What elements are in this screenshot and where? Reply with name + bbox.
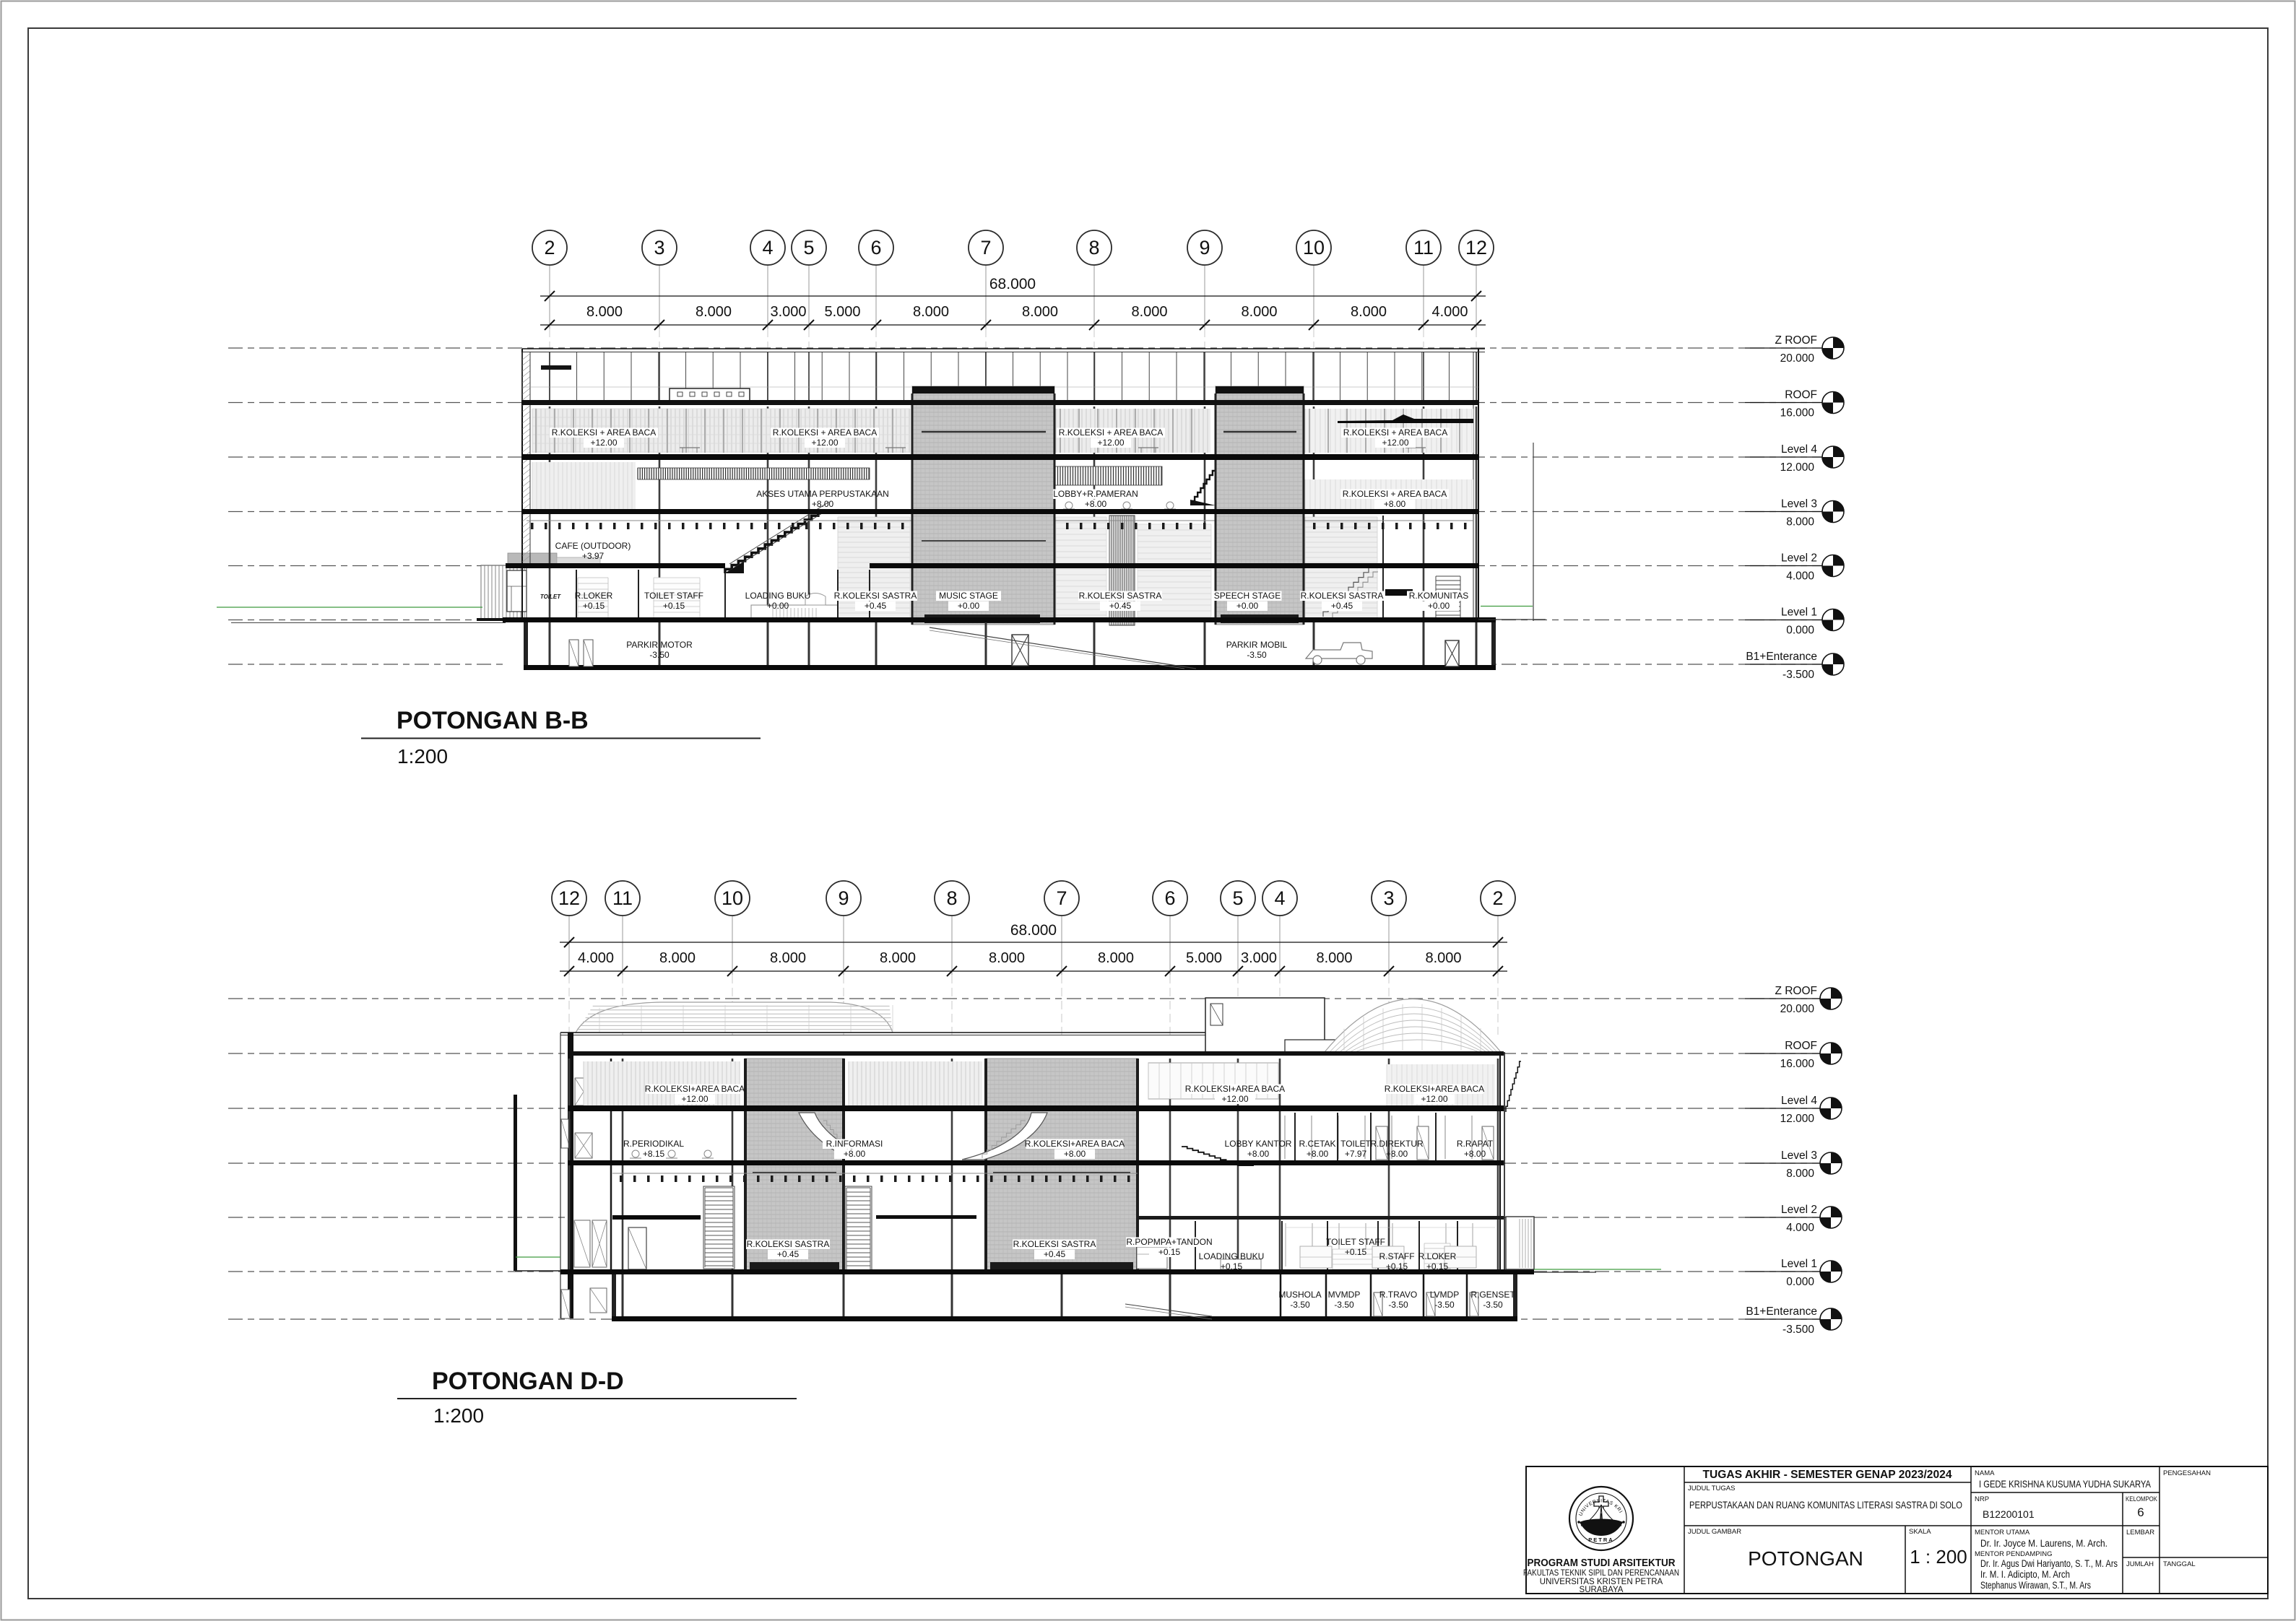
- svg-text:8.000: 8.000: [989, 950, 1025, 966]
- svg-text:+0.45: +0.45: [777, 1249, 800, 1259]
- svg-text:5.000: 5.000: [824, 304, 860, 320]
- svg-text:SPEECH STAGE: SPEECH STAGE: [1214, 591, 1281, 601]
- svg-text:LVMDP: LVMDP: [1430, 1290, 1459, 1300]
- svg-text:B1+Enterance: B1+Enterance: [1746, 1305, 1817, 1318]
- svg-text:R.KOLEKSI SASTRA: R.KOLEKSI SASTRA: [1013, 1239, 1096, 1249]
- svg-text:0.000: 0.000: [1786, 1276, 1814, 1288]
- svg-text:TOILET: TOILET: [540, 594, 561, 600]
- svg-text:B12200101: B12200101: [1983, 1508, 2035, 1520]
- svg-text:+0.15: +0.15: [1221, 1261, 1243, 1272]
- svg-text:FAKULTAS TEKNIK SIPIL DAN PERE: FAKULTAS TEKNIK SIPIL DAN PERENCANAAN: [1523, 1569, 1679, 1578]
- svg-text:AKSES UTAMA PERPUSTAKAAN: AKSES UTAMA PERPUSTAKAAN: [756, 489, 889, 499]
- svg-text:0.000: 0.000: [1786, 625, 1814, 637]
- svg-text:+8.00: +8.00: [1307, 1149, 1329, 1159]
- svg-text:LOADING BUKU: LOADING BUKU: [1199, 1251, 1265, 1261]
- svg-text:+8.00: +8.00: [1064, 1149, 1086, 1159]
- svg-text:+8.00: +8.00: [1085, 499, 1107, 509]
- svg-text:6: 6: [1164, 887, 1175, 909]
- svg-text:PROGRAM STUDI ARSITEKTUR: PROGRAM STUDI ARSITEKTUR: [1528, 1557, 1676, 1569]
- svg-text:R.RAPAT: R.RAPAT: [1457, 1139, 1494, 1149]
- svg-text:MENTOR UTAMA: MENTOR UTAMA: [1975, 1529, 2030, 1537]
- svg-text:+0.00: +0.00: [958, 601, 980, 611]
- svg-text:R.KOLEKSI+AREA BACA: R.KOLEKSI+AREA BACA: [1025, 1139, 1125, 1149]
- svg-text:Dr. Ir. Joyce M. Laurens, M. A: Dr. Ir. Joyce M. Laurens, M. Arch.: [1980, 1538, 2107, 1549]
- svg-text:R.KOLEKSI SASTRA: R.KOLEKSI SASTRA: [747, 1239, 830, 1249]
- svg-text:PETRA: PETRA: [1588, 1537, 1613, 1543]
- svg-text:Level 2: Level 2: [1781, 552, 1817, 565]
- svg-text:R,GENSET: R,GENSET: [1470, 1290, 1515, 1300]
- svg-text:Level 3: Level 3: [1781, 498, 1817, 510]
- svg-text:+0.45: +0.45: [1109, 601, 1132, 611]
- svg-text:7: 7: [1056, 887, 1067, 909]
- svg-text:+0.45: +0.45: [865, 601, 887, 611]
- svg-text:5: 5: [1232, 887, 1243, 909]
- svg-text:Level 4: Level 4: [1781, 1095, 1817, 1107]
- svg-text:12: 12: [558, 887, 580, 909]
- svg-text:R.KOLEKSI+AREA BACA: R.KOLEKSI+AREA BACA: [645, 1084, 745, 1094]
- svg-text:9: 9: [838, 887, 849, 909]
- svg-text:LOBBY+R.PAMERAN: LOBBY+R.PAMERAN: [1053, 489, 1138, 499]
- svg-text:8.000: 8.000: [1241, 304, 1277, 320]
- svg-text:PENGESAHAN: PENGESAHAN: [2163, 1469, 2211, 1477]
- svg-text:MUSIC STAGE: MUSIC STAGE: [939, 591, 998, 601]
- svg-text:4.000: 4.000: [1786, 1222, 1814, 1234]
- svg-text:-3.50: -3.50: [1434, 1300, 1455, 1310]
- svg-text:8.000: 8.000: [1131, 304, 1167, 320]
- svg-text:10: 10: [722, 887, 743, 909]
- svg-text:PERPUSTAKAAN DAN RUANG KOMUNIT: PERPUSTAKAAN DAN RUANG KOMUNITAS LITERAS…: [1689, 1499, 1962, 1511]
- svg-text:20.000: 20.000: [1780, 352, 1815, 365]
- svg-text:NRP: NRP: [1975, 1495, 1989, 1503]
- svg-text:JUDUL GAMBAR: JUDUL GAMBAR: [1688, 1528, 1741, 1536]
- svg-text:2: 2: [544, 237, 555, 258]
- svg-text:R.KOLEKSI SASTRA: R.KOLEKSI SASTRA: [1301, 591, 1384, 601]
- svg-text:-3.500: -3.500: [1782, 1324, 1814, 1336]
- svg-text:Level 2: Level 2: [1781, 1204, 1817, 1216]
- svg-text:-3.50: -3.50: [1247, 650, 1267, 660]
- svg-text:MVMDP: MVMDP: [1328, 1290, 1361, 1300]
- svg-text:5: 5: [803, 237, 814, 258]
- svg-text:8.000: 8.000: [1786, 516, 1814, 529]
- svg-text:R.KOLEKSI + AREA BACA: R.KOLEKSI + AREA BACA: [773, 427, 877, 438]
- svg-text:8: 8: [946, 887, 957, 909]
- svg-text:+12.00: +12.00: [681, 1094, 708, 1104]
- svg-text:Level 1: Level 1: [1781, 607, 1817, 619]
- svg-text:8.000: 8.000: [1786, 1168, 1814, 1180]
- svg-text:+0.45: +0.45: [1331, 601, 1353, 611]
- svg-text:TANGGAL: TANGGAL: [2163, 1560, 2196, 1568]
- svg-text:+8.00: +8.00: [812, 499, 834, 509]
- svg-text:3: 3: [1383, 887, 1394, 909]
- svg-text:Ir. M. I. Adicipto, M. Arch: Ir. M. I. Adicipto, M. Arch: [1980, 1569, 2070, 1580]
- svg-text:LOADING BUKU: LOADING BUKU: [745, 591, 811, 601]
- svg-text:Z ROOF: Z ROOF: [1775, 985, 1817, 997]
- svg-text:R.KOLEKSI + AREA BACA: R.KOLEKSI + AREA BACA: [1059, 427, 1163, 438]
- svg-text:-3.50: -3.50: [1388, 1300, 1408, 1310]
- svg-text:10: 10: [1303, 237, 1325, 258]
- svg-text:8.000: 8.000: [1425, 950, 1461, 966]
- svg-text:16.000: 16.000: [1780, 407, 1815, 420]
- svg-text:R.KOLEKSI + AREA BACA: R.KOLEKSI + AREA BACA: [552, 427, 656, 438]
- svg-text:-3.50: -3.50: [649, 650, 670, 660]
- svg-text:4: 4: [762, 237, 773, 258]
- svg-text:PARKIR MOBIL: PARKIR MOBIL: [1226, 640, 1288, 650]
- svg-text:+12.00: +12.00: [811, 438, 838, 448]
- svg-text:+12.00: +12.00: [1382, 438, 1408, 448]
- svg-text:JUDUL TUGAS: JUDUL TUGAS: [1688, 1485, 1735, 1492]
- svg-text:+0.00: +0.00: [1428, 601, 1450, 611]
- svg-text:+0.00: +0.00: [767, 601, 789, 611]
- svg-text:-3.500: -3.500: [1782, 669, 1814, 681]
- svg-text:+0.15: +0.15: [1158, 1247, 1181, 1257]
- svg-text:+0.15: +0.15: [1345, 1247, 1367, 1257]
- svg-text:16.000: 16.000: [1780, 1058, 1815, 1070]
- svg-text:R.KOLEKSI SASTRA: R.KOLEKSI SASTRA: [834, 591, 917, 601]
- svg-text:Level 3: Level 3: [1781, 1150, 1817, 1162]
- svg-text:11: 11: [1413, 237, 1434, 258]
- svg-text:4.000: 4.000: [1786, 570, 1814, 583]
- svg-text:R.KOLEKSI+AREA BACA: R.KOLEKSI+AREA BACA: [1385, 1084, 1484, 1094]
- svg-text:8.000: 8.000: [880, 950, 916, 966]
- svg-text:8.000: 8.000: [1316, 950, 1352, 966]
- svg-text:Stephanus Wirawan, S.T., M. Ar: Stephanus Wirawan, S.T., M. Ars: [1980, 1580, 2091, 1591]
- svg-text:8.000: 8.000: [1098, 950, 1134, 966]
- svg-text:2: 2: [1492, 887, 1503, 909]
- svg-text:R.KOMUNITAS: R.KOMUNITAS: [1409, 591, 1468, 601]
- svg-text:MENTOR PENDAMPING: MENTOR PENDAMPING: [1975, 1550, 2053, 1558]
- svg-text:1 : 200: 1 : 200: [1910, 1546, 1967, 1568]
- svg-text:TOILET STAFF: TOILET STAFF: [1326, 1237, 1385, 1247]
- svg-text:POTONGAN D-D: POTONGAN D-D: [432, 1368, 624, 1395]
- svg-text:LOBBY KANTOR: LOBBY KANTOR: [1225, 1139, 1292, 1149]
- svg-text:8.000: 8.000: [696, 304, 732, 320]
- svg-text:8.000: 8.000: [659, 950, 696, 966]
- svg-text:+12.00: +12.00: [590, 438, 617, 448]
- svg-text:9: 9: [1199, 237, 1210, 258]
- svg-text:+8.00: +8.00: [1384, 499, 1406, 509]
- svg-text:11: 11: [612, 887, 633, 909]
- svg-text:+8.00: +8.00: [1464, 1149, 1486, 1159]
- svg-text:PARKIR MOTOR: PARKIR MOTOR: [626, 640, 693, 650]
- svg-text:R.KOLEKSI SASTRA: R.KOLEKSI SASTRA: [1079, 591, 1162, 601]
- svg-text:SURABAYA: SURABAYA: [1580, 1586, 1624, 1594]
- svg-text:+8.00: +8.00: [844, 1149, 866, 1159]
- svg-text:3.000: 3.000: [1241, 950, 1277, 966]
- svg-text:-3.50: -3.50: [1334, 1300, 1354, 1310]
- svg-text:4.000: 4.000: [1431, 304, 1468, 320]
- svg-text:+12.00: +12.00: [1221, 1094, 1248, 1104]
- svg-text:+7.97: +7.97: [1345, 1149, 1367, 1159]
- svg-text:R.CETAK: R.CETAK: [1299, 1139, 1335, 1149]
- svg-text:Dr. Ir. Agus Dwi Hariyanto, S.: Dr. Ir. Agus Dwi Hariyanto, S. T., M. Ar…: [1980, 1558, 2118, 1569]
- svg-text:8.000: 8.000: [586, 304, 623, 320]
- svg-text:+0.15: +0.15: [583, 601, 605, 611]
- svg-text:TOILET: TOILET: [1340, 1139, 1371, 1149]
- svg-text:1:200: 1:200: [433, 1404, 484, 1427]
- svg-text:R.STAFF: R.STAFF: [1379, 1251, 1414, 1261]
- svg-text:4: 4: [1274, 887, 1285, 909]
- svg-text:4.000: 4.000: [578, 950, 614, 966]
- svg-text:NAMA: NAMA: [1975, 1469, 1995, 1477]
- svg-text:SKALA: SKALA: [1909, 1528, 1931, 1536]
- svg-text:R.PERIODIKAL: R.PERIODIKAL: [623, 1139, 684, 1149]
- svg-text:+12.00: +12.00: [1421, 1094, 1447, 1104]
- svg-text:R.INFORMASI: R.INFORMASI: [826, 1139, 883, 1149]
- svg-text:+0.15: +0.15: [1426, 1261, 1449, 1272]
- svg-text:8: 8: [1088, 237, 1099, 258]
- svg-text:+8.00: +8.00: [1386, 1149, 1408, 1159]
- svg-text:Z ROOF: Z ROOF: [1775, 334, 1817, 347]
- svg-text:ROOF: ROOF: [1785, 389, 1817, 401]
- svg-text:8.000: 8.000: [1022, 304, 1058, 320]
- svg-text:8.000: 8.000: [770, 950, 806, 966]
- svg-text:I GEDE KRISHNA KUSUMA YUDHA SU: I GEDE KRISHNA KUSUMA YUDHA SUKARYA: [1979, 1478, 2152, 1490]
- svg-text:68.000: 68.000: [1010, 922, 1057, 939]
- svg-text:Level 1: Level 1: [1781, 1258, 1817, 1270]
- svg-text:7: 7: [980, 237, 991, 258]
- svg-text:1:200: 1:200: [397, 745, 448, 768]
- svg-text:R.KOLEKSI+AREA BACA: R.KOLEKSI+AREA BACA: [1185, 1084, 1285, 1094]
- svg-text:MUSHOLA: MUSHOLA: [1278, 1290, 1321, 1300]
- svg-text:+8.00: +8.00: [1247, 1149, 1270, 1159]
- svg-text:LEMBAR: LEMBAR: [2126, 1529, 2154, 1537]
- svg-text:8.000: 8.000: [913, 304, 949, 320]
- svg-text:+0.15: +0.15: [663, 601, 685, 611]
- svg-text:ROOF: ROOF: [1785, 1040, 1817, 1052]
- svg-text:TUGAS AKHIR - SEMESTER GENAP 2: TUGAS AKHIR - SEMESTER GENAP 2023/2024: [1703, 1469, 1952, 1481]
- svg-text:12: 12: [1465, 237, 1487, 258]
- svg-text:JUMLAH: JUMLAH: [2126, 1560, 2154, 1568]
- svg-text:+8.15: +8.15: [643, 1149, 665, 1159]
- svg-text:POTONGAN: POTONGAN: [1748, 1547, 1863, 1570]
- svg-text:R.KOLEKSI + AREA BACA: R.KOLEKSI + AREA BACA: [1343, 489, 1447, 499]
- svg-text:5.000: 5.000: [1186, 950, 1222, 966]
- svg-text:Level 4: Level 4: [1781, 443, 1817, 456]
- svg-text:8.000: 8.000: [1351, 304, 1387, 320]
- svg-text:-3.50: -3.50: [1483, 1300, 1503, 1310]
- svg-text:TOILET STAFF: TOILET STAFF: [644, 591, 703, 601]
- svg-text:12.000: 12.000: [1780, 461, 1815, 474]
- svg-text:+12.00: +12.00: [1097, 438, 1124, 448]
- svg-text:12.000: 12.000: [1780, 1113, 1815, 1125]
- svg-text:POTONGAN B-B: POTONGAN B-B: [397, 707, 589, 734]
- svg-text:+0.45: +0.45: [1044, 1249, 1066, 1259]
- svg-text:6: 6: [870, 237, 881, 258]
- svg-text:+0.15: +0.15: [1386, 1261, 1408, 1272]
- svg-text:R.DIREKTUR: R.DIREKTUR: [1370, 1139, 1424, 1149]
- svg-text:6: 6: [2137, 1505, 2144, 1519]
- svg-text:KELOMPOK: KELOMPOK: [2126, 1495, 2157, 1503]
- svg-text:20.000: 20.000: [1780, 1003, 1815, 1015]
- svg-text:68.000: 68.000: [989, 276, 1036, 292]
- svg-text:B1+Enterance: B1+Enterance: [1746, 651, 1817, 663]
- svg-text:+3.97: +3.97: [582, 551, 605, 561]
- svg-text:R.LOKER: R.LOKER: [575, 591, 613, 601]
- svg-text:R.TRAVO: R.TRAVO: [1379, 1290, 1417, 1300]
- svg-text:R.KOLEKSI + AREA BACA: R.KOLEKSI + AREA BACA: [1343, 427, 1447, 438]
- svg-text:CAFE (OUTDOOR): CAFE (OUTDOOR): [555, 541, 631, 551]
- svg-text:R.LOKER: R.LOKER: [1418, 1251, 1457, 1261]
- svg-text:3.000: 3.000: [770, 304, 806, 320]
- svg-text:R.POPMPA+TANDON: R.POPMPA+TANDON: [1126, 1237, 1212, 1247]
- svg-text:3: 3: [654, 237, 664, 258]
- svg-text:-3.50: -3.50: [1290, 1300, 1310, 1310]
- svg-text:+0.00: +0.00: [1236, 601, 1259, 611]
